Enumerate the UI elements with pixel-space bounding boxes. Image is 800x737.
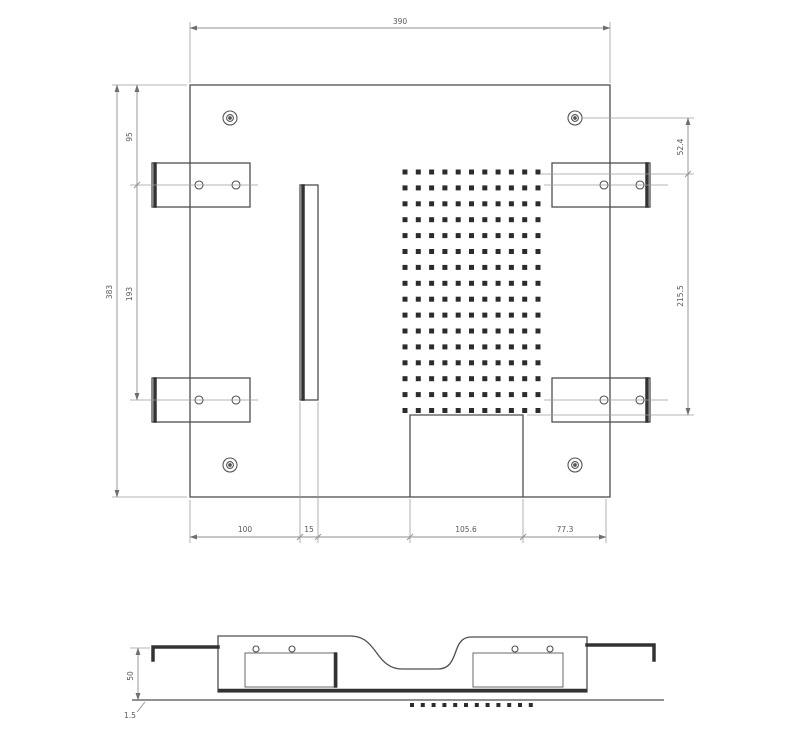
dim-label-right-upper: 52.4 [676,138,685,155]
side-left-panel [245,646,337,687]
lower-cutout [410,415,523,497]
dim-label-overall-width: 390 [393,17,408,26]
screw-bottom-right [568,458,582,472]
dim-label-left-upper: 95 [125,132,134,142]
handle-channel [300,185,318,400]
dim-label-overall-height: 383 [105,285,114,300]
dim-label-left-mid: 193 [125,287,134,302]
side-right-hook [587,645,654,660]
dim-label-bottom-seg3: 105.6 [455,525,477,534]
dim-label-thickness: 1.5 [124,711,136,720]
dim-left-inner: 95 193 [125,85,140,400]
screw-top-left [223,111,237,125]
dim-label-bottom-seg2: 15 [304,525,314,534]
dim-side-height: 50 [126,648,150,700]
dim-label-side-height: 50 [126,671,135,681]
dim-sheet-thickness: 1.5 [124,702,145,720]
corner-screws [223,111,582,472]
side-view: 50 1.5 [124,636,664,720]
screw-bottom-left [223,458,237,472]
dim-left-height: 383 [105,85,187,497]
dim-top-width: 390 [190,17,610,83]
side-left-hook [153,647,218,660]
drawing-canvas: 390 383 95 193 52.4 215.5 [0,0,800,737]
side-right-panel [473,646,563,687]
plate-outline [190,85,610,497]
vent-hole-grid [403,170,541,414]
dim-label-right-mid: 215.5 [676,285,685,307]
side-vent-holes [410,703,533,707]
technical-drawing: 390 383 95 193 52.4 215.5 [0,0,800,737]
dim-label-bottom-seg1: 100 [238,525,253,534]
dim-bottom: 100 15 105.6 77.3 [190,402,606,543]
mounting-brackets [130,163,668,422]
side-body-outline [218,636,587,692]
dim-label-bottom-seg4: 77.3 [557,525,574,534]
plan-view: 390 383 95 193 52.4 215.5 [105,17,694,543]
screw-top-right [568,111,582,125]
